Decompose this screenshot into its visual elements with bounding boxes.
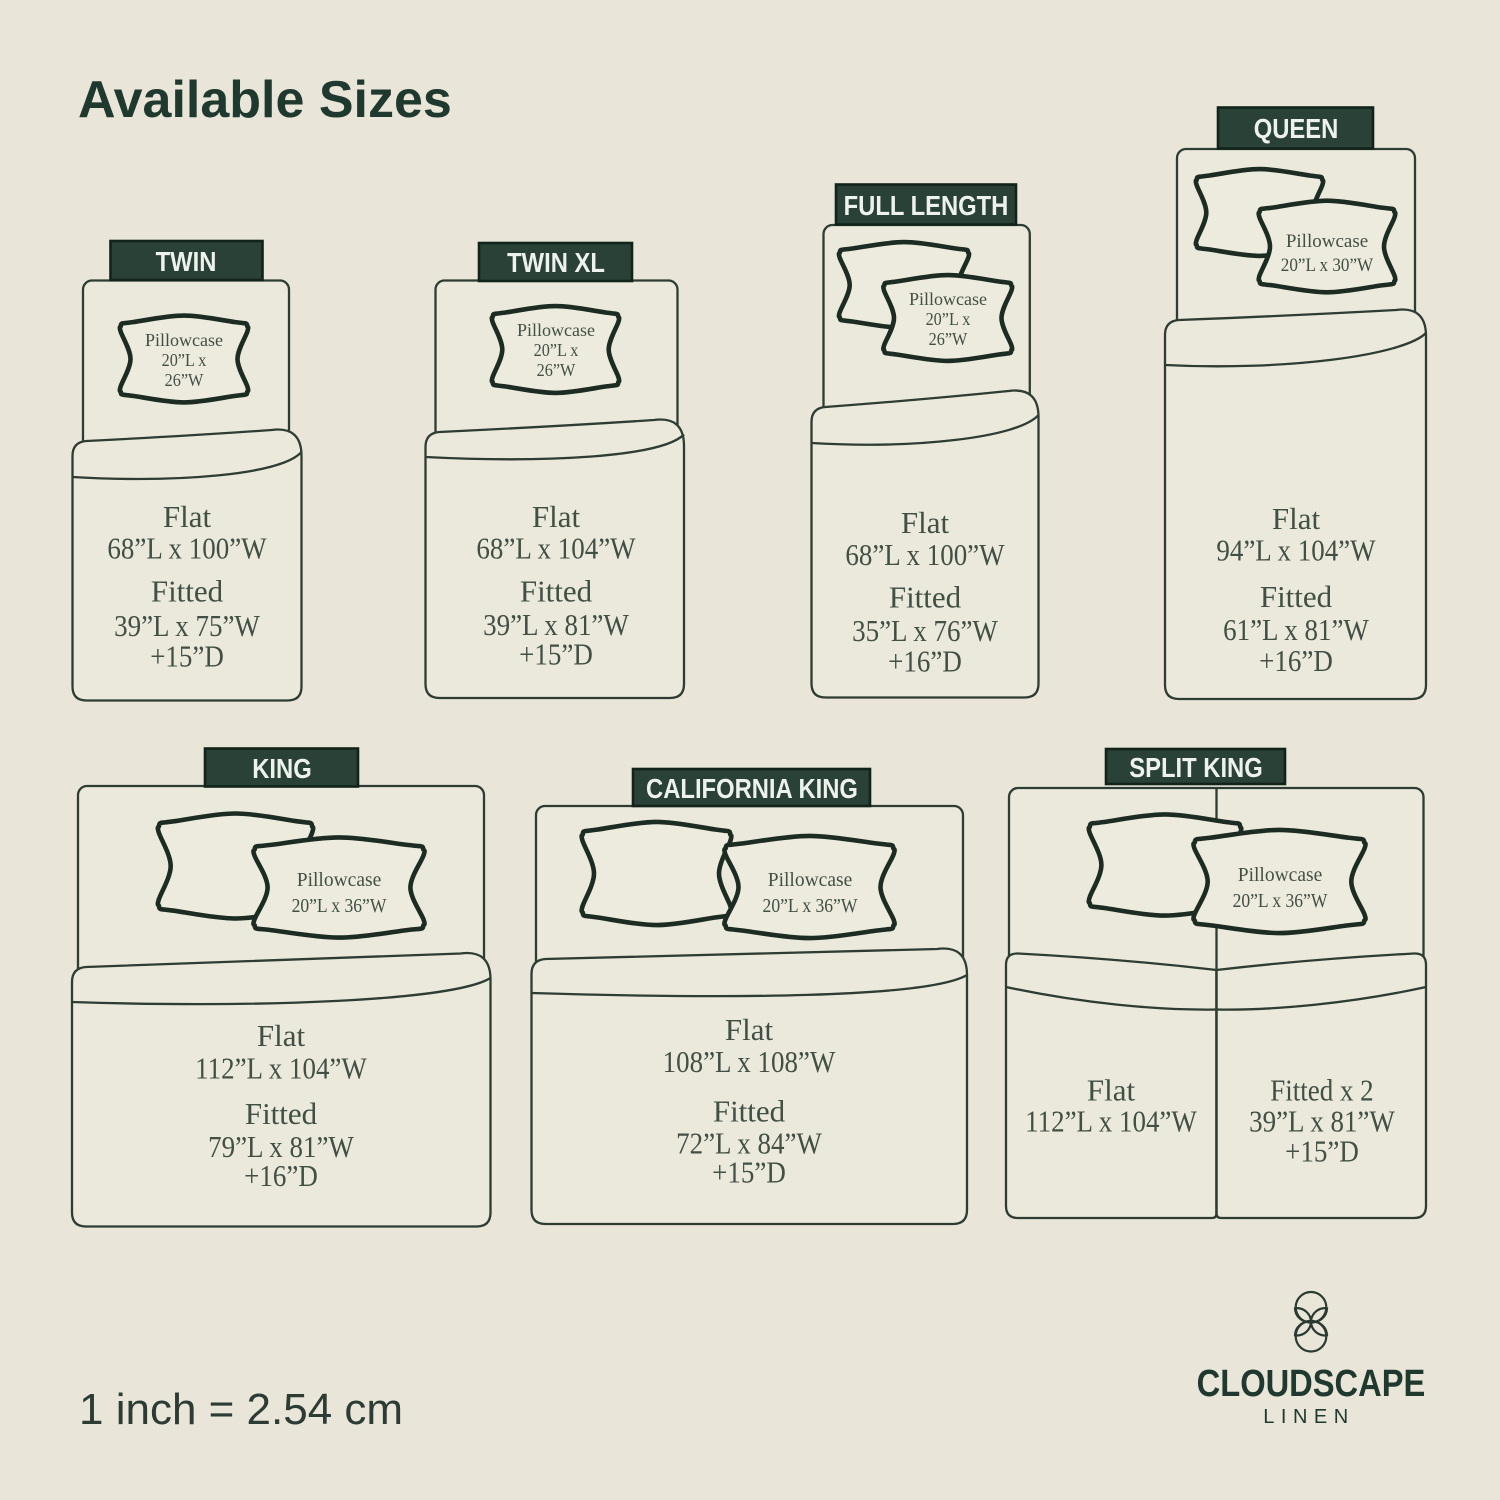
svg-text:+15”D: +15”D	[150, 640, 224, 674]
svg-text:Available Sizes: Available Sizes	[78, 71, 452, 129]
svg-text:112”L x 104”W: 112”L x 104”W	[195, 1052, 367, 1086]
svg-text:Flat: Flat	[532, 499, 581, 534]
svg-text:39”L x 75”W: 39”L x 75”W	[114, 609, 260, 643]
svg-text:Fitted: Fitted	[889, 580, 962, 615]
svg-text:Flat: Flat	[901, 505, 950, 540]
svg-text:FULL LENGTH: FULL LENGTH	[844, 189, 1009, 221]
svg-text:KING: KING	[252, 752, 311, 784]
svg-text:20”L x 36”W: 20”L x 36”W	[763, 895, 858, 917]
svg-text:Pillowcase: Pillowcase	[768, 870, 852, 891]
svg-text:CLOUDSCAPE: CLOUDSCAPE	[1197, 1362, 1426, 1405]
svg-text:20”L x: 20”L x	[162, 350, 207, 370]
svg-text:Fitted x 2: Fitted x 2	[1270, 1074, 1373, 1108]
svg-text:Fitted: Fitted	[713, 1094, 786, 1129]
svg-text:Flat: Flat	[1272, 501, 1321, 536]
svg-text:61”L x 81”W: 61”L x 81”W	[1223, 613, 1369, 647]
svg-text:+15”D: +15”D	[519, 638, 593, 672]
svg-text:Pillowcase: Pillowcase	[145, 330, 223, 350]
svg-text:SPLIT KING: SPLIT KING	[1129, 751, 1262, 783]
svg-text:+16”D: +16”D	[1259, 644, 1333, 678]
svg-text:+15”D: +15”D	[712, 1156, 786, 1190]
svg-text:Flat: Flat	[725, 1012, 774, 1047]
svg-text:Pillowcase: Pillowcase	[297, 870, 381, 891]
svg-text:20”L x: 20”L x	[534, 340, 579, 360]
svg-text:68”L x 104”W: 68”L x 104”W	[476, 532, 636, 566]
svg-text:20”L x 36”W: 20”L x 36”W	[292, 895, 387, 917]
svg-text:20”L x 30”W: 20”L x 30”W	[1281, 254, 1374, 275]
svg-text:Pillowcase: Pillowcase	[909, 289, 987, 309]
svg-text:TWIN XL: TWIN XL	[507, 246, 605, 278]
svg-text:Fitted: Fitted	[520, 574, 593, 609]
svg-text:Fitted: Fitted	[151, 574, 224, 609]
svg-text:20”L x: 20”L x	[926, 309, 971, 329]
svg-text:Fitted: Fitted	[245, 1096, 318, 1131]
svg-text:26”W: 26”W	[929, 329, 968, 349]
svg-text:26”W: 26”W	[165, 370, 204, 390]
svg-text:26”W: 26”W	[537, 360, 576, 380]
svg-text:Pillowcase: Pillowcase	[1238, 865, 1322, 886]
svg-text:TWIN: TWIN	[156, 245, 217, 277]
svg-text:68”L x 100”W: 68”L x 100”W	[107, 532, 267, 566]
svg-text:+16”D: +16”D	[244, 1159, 318, 1193]
svg-text:112”L x 104”W: 112”L x 104”W	[1025, 1105, 1197, 1139]
svg-text:CALIFORNIA KING: CALIFORNIA KING	[646, 772, 858, 804]
svg-text:Flat: Flat	[257, 1018, 306, 1053]
svg-text:68”L x 100”W: 68”L x 100”W	[845, 538, 1005, 572]
svg-text:94”L x 104”W: 94”L x 104”W	[1216, 534, 1376, 568]
svg-text:Fitted: Fitted	[1260, 579, 1333, 614]
svg-text:108”L x 108”W: 108”L x 108”W	[663, 1045, 836, 1079]
svg-text:20”L x 36”W: 20”L x 36”W	[1233, 890, 1328, 912]
svg-text:Pillowcase: Pillowcase	[517, 320, 595, 340]
svg-text:LINEN: LINEN	[1263, 1406, 1354, 1428]
svg-text:QUEEN: QUEEN	[1254, 112, 1339, 144]
svg-text:+15”D: +15”D	[1285, 1135, 1359, 1169]
svg-text:1 inch = 2.54 cm: 1 inch = 2.54 cm	[79, 1385, 403, 1434]
svg-text:Pillowcase: Pillowcase	[1286, 231, 1368, 252]
svg-text:Flat: Flat	[163, 499, 212, 534]
svg-text:35”L x 76”W: 35”L x 76”W	[852, 614, 998, 648]
svg-text:+16”D: +16”D	[888, 645, 962, 679]
svg-text:Flat: Flat	[1087, 1073, 1136, 1108]
